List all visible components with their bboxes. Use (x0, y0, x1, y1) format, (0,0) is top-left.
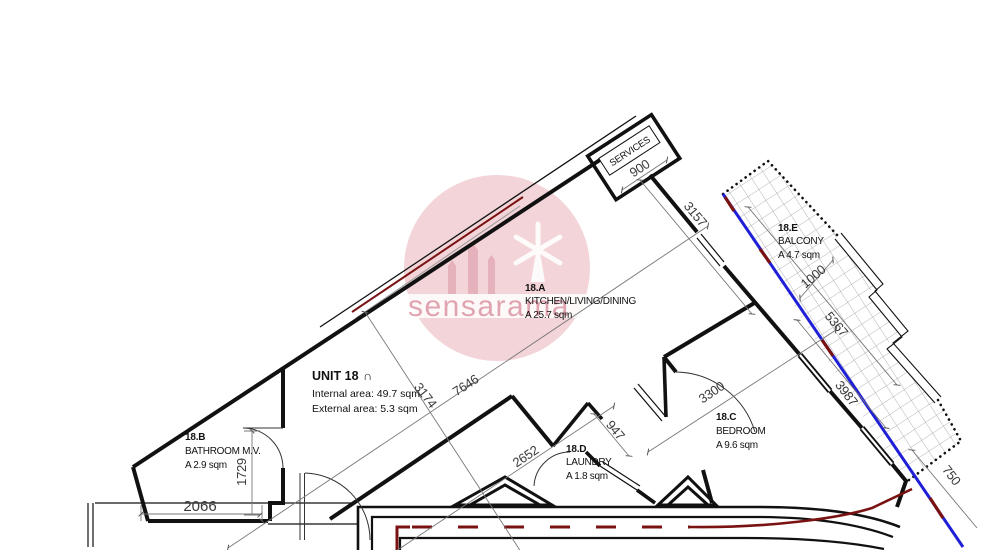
room-18e-id: 18.E (778, 223, 798, 234)
corridor-bottom-thin (88, 503, 352, 547)
unit-title-symbol: ∩ (363, 369, 372, 383)
wall-triangle-1 (455, 477, 552, 505)
dim-line-750 (912, 450, 977, 528)
laundry-door-arc (534, 452, 570, 486)
room-18c-name: BEDROOM (716, 426, 766, 437)
floor-plan-canvas: sensarama (0, 0, 1000, 550)
room-18d-area: A 1.8 sqm (566, 471, 608, 482)
bedroom-window-1-glass (800, 355, 830, 391)
unit-internal-area: Internal area: 49.7 sqm (312, 388, 420, 400)
balcony-slider-door (697, 234, 724, 266)
neighbour-wall-outer (358, 507, 900, 550)
watermark-circle (404, 175, 590, 361)
unit-title: UNIT 18 (312, 369, 359, 383)
room-18b-id: 18.B (185, 432, 205, 443)
room-18a-area: A 25.7 sqm (525, 310, 572, 321)
dim-750: 750 (939, 462, 964, 488)
dim-947: 947 (603, 417, 628, 443)
room-18c-id: 18.C (716, 412, 736, 423)
floor-plan-drawing: sensarama (0, 0, 1000, 550)
dim-7646: 7646 (450, 371, 481, 399)
neighbour-wall-mid (372, 517, 893, 550)
dim-3300: 3300 (696, 378, 727, 406)
dim-2652: 2652 (510, 442, 541, 470)
room-18a-name: KITCHEN/LIVING/DINING (525, 296, 636, 307)
watermark: sensarama (403, 175, 595, 361)
laundry-window-lines (600, 384, 666, 490)
room-18e-name: BALCONY (778, 236, 824, 247)
room-18e-area: A 4.7 sqm (778, 250, 820, 261)
room-18d-id: 18.D (566, 444, 586, 455)
room-18d-name: LAUNDRY (566, 457, 612, 468)
dim-3157: 3157 (681, 199, 710, 230)
dim-2066: 2066 (183, 498, 216, 515)
room-18c-area: A 9.6 sqm (716, 440, 758, 451)
entrance-door-leaf (300, 473, 305, 540)
bedroom-walls (664, 302, 756, 503)
unit-external-area: External area: 5.3 sqm (312, 403, 418, 415)
room-18b-name: BATHROOM M.V. (185, 446, 261, 457)
room-18b-area: A 2.9 sqm (185, 460, 227, 471)
neighbour-wall-bottom (400, 538, 884, 550)
room-18a-id: 18.A (525, 283, 545, 294)
dim-1729: 1729 (234, 458, 249, 486)
services-shaft: SERVICES (588, 115, 680, 200)
